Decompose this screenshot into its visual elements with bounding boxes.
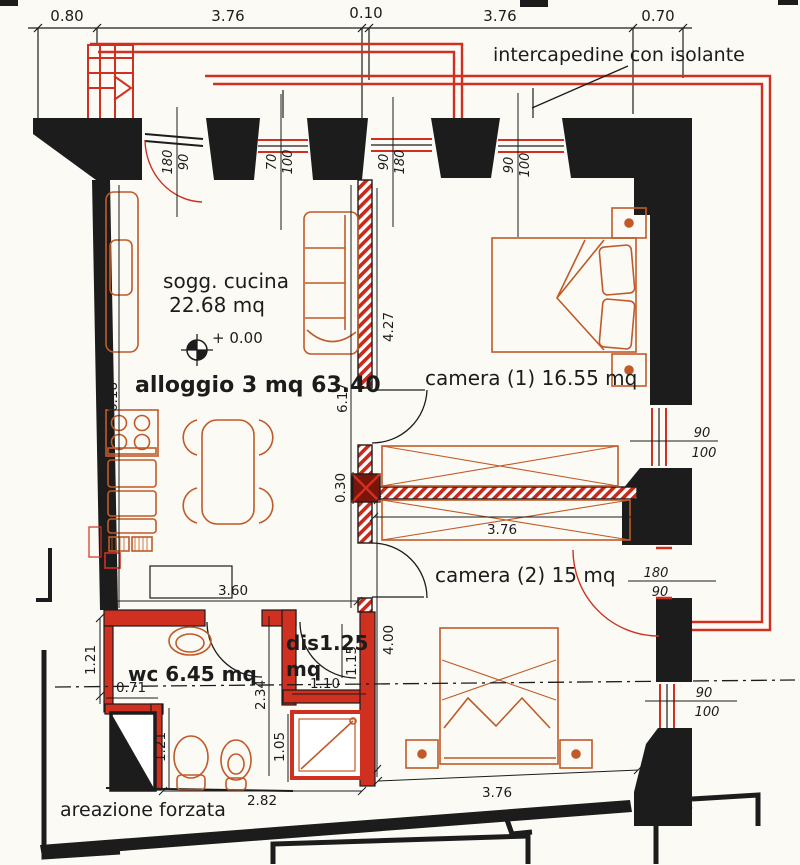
insulation-label: intercapedine con isolante — [493, 44, 745, 66]
dim-1-21-b: 1.21 — [153, 732, 169, 762]
svg-text:100: 100 — [518, 153, 533, 178]
dim-4-27: 4.27 — [381, 312, 397, 342]
dim-2-34: 2.34 — [253, 680, 269, 710]
dim-6-17: 6.17 — [335, 383, 351, 413]
wc-west-wall — [104, 626, 113, 712]
staircase — [88, 45, 133, 121]
wardrobe-upper — [382, 446, 618, 486]
wall-top-right — [562, 118, 692, 405]
chair — [183, 420, 197, 455]
dim-1-21-a: 1.21 — [83, 645, 99, 675]
door-camera1-top-size: 90 180 — [377, 97, 408, 227]
blanket-fold — [442, 660, 556, 700]
svg-text:100: 100 — [281, 150, 296, 175]
wall-pier-c — [431, 118, 500, 178]
window-top-right — [498, 140, 564, 152]
entry-door-size: 180 90 — [161, 107, 192, 217]
wall-right-lower-pier — [656, 598, 692, 682]
dim-3-60: 3.60 — [218, 583, 248, 599]
chair — [259, 488, 273, 523]
pillow — [599, 245, 635, 296]
openings — [145, 134, 674, 728]
chair — [183, 488, 197, 523]
wc-north-wall-a — [104, 610, 205, 626]
dim-1-05: 1.05 — [272, 732, 288, 762]
dim-6-18: 6.18 — [105, 382, 121, 412]
door-camera1-top — [371, 139, 432, 151]
window-top-left-size: 70 100 — [265, 94, 296, 230]
window-right-mid — [652, 408, 666, 466]
label-soggiorno-2: 22.68 mq — [169, 293, 265, 317]
svg-text:180: 180 — [161, 150, 176, 175]
nightstand-camera2-b — [560, 740, 592, 768]
floor-plan-drawing: 0.80 3.76 0.10 3.76 0.70 intercapedine c… — [0, 0, 800, 865]
wc-bidet — [221, 740, 251, 790]
label-areazione: areazione forzata — [60, 799, 226, 821]
sofa — [304, 212, 358, 354]
dim-3-76-a: 3.76 — [211, 7, 244, 25]
dim-0-70: 0.70 — [641, 7, 674, 25]
svg-text:90: 90 — [652, 585, 669, 600]
chair — [259, 420, 273, 455]
label-camera2: camera (2) 15 mq — [435, 563, 616, 587]
pillows — [444, 698, 550, 728]
dim-0-80: 0.80 — [50, 7, 83, 25]
dim-3-76-wardrobe: 3.76 — [487, 522, 517, 538]
pillow — [599, 299, 635, 350]
svg-text:180: 180 — [644, 566, 669, 581]
wc-toilet — [174, 736, 208, 790]
dim-0-30: 0.30 — [333, 473, 349, 503]
level-marker: + 0.00 — [181, 329, 263, 366]
window-top-right-size: 90 100 — [502, 93, 533, 237]
level-value: + 0.00 — [212, 329, 263, 347]
top-dimension-chain — [28, 24, 692, 118]
nightstand-camera2-a — [406, 740, 438, 768]
svg-text:100: 100 — [692, 446, 717, 461]
dim-3-76-bottom: 3.76 — [482, 785, 512, 801]
stair-direction-arrow — [114, 76, 131, 100]
svg-text:90: 90 — [694, 426, 711, 441]
scan-artifacts — [0, 0, 798, 7]
top-dimension-labels: 0.80 3.76 0.10 3.76 0.70 — [50, 4, 674, 25]
window-right-bottom — [660, 684, 674, 728]
dim-4-00: 4.00 — [381, 625, 397, 655]
wall-pier-top-left — [33, 118, 142, 180]
label-camera1: camera (1) 16.55 mq — [425, 366, 637, 390]
dim-3-76-b: 3.76 — [483, 7, 516, 25]
bed-camera2 — [440, 628, 558, 764]
window-right-mid-size: 90 100 — [630, 426, 718, 461]
partition-sogg-camera1 — [358, 180, 372, 388]
dim-2-82: 2.82 — [247, 793, 277, 809]
svg-text:90: 90 — [377, 154, 392, 171]
svg-text:90: 90 — [502, 157, 517, 174]
shower — [292, 712, 362, 778]
dim-1-15: 1.15 — [344, 646, 360, 676]
floor-plan-page: 0.80 3.76 0.10 3.76 0.70 intercapedine c… — [0, 0, 800, 865]
wc-washbasin — [169, 627, 211, 655]
door-right-size: 180 90 — [628, 566, 716, 600]
dim-0-10: 0.10 — [349, 4, 382, 22]
svg-text:90: 90 — [696, 686, 713, 701]
svg-text:100: 100 — [695, 705, 720, 720]
label-wc: wc 6.45 mq — [128, 662, 257, 686]
blanket-fold — [557, 240, 604, 350]
svg-text:180: 180 — [393, 150, 408, 175]
wall-junction-node — [352, 474, 380, 502]
svg-text:70: 70 — [265, 154, 280, 171]
partition-wardrobe-wall — [362, 487, 637, 499]
dim-0-71: 0.71 — [116, 680, 146, 696]
wall-pier-a — [206, 118, 260, 180]
window-right-bottom-size: 90 100 — [645, 686, 737, 720]
bed-camera1 — [492, 238, 636, 352]
wall-divider-right — [622, 468, 692, 545]
ventilation-shaft — [111, 713, 155, 790]
svg-text:90: 90 — [177, 154, 192, 171]
dining-table — [183, 420, 273, 524]
dim-1-10: 1.10 — [310, 676, 340, 692]
label-soggiorno-1: sogg. cucina — [163, 269, 289, 293]
door-camera2 — [372, 543, 427, 598]
wall-pier-b — [307, 118, 368, 180]
